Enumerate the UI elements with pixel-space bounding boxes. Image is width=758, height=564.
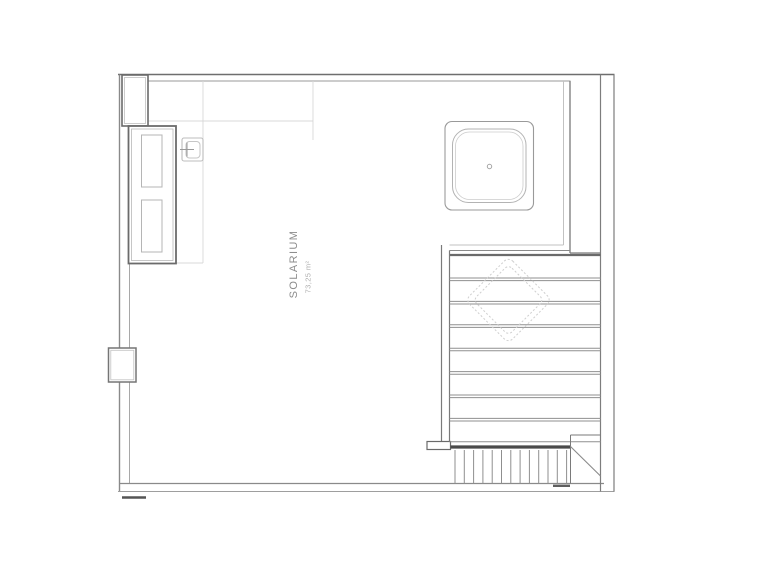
stair-side-wall [427, 245, 451, 450]
grate-hatch [455, 450, 567, 484]
hot-tub-inner-rim [453, 129, 527, 203]
room-name: SOLARIUM [288, 230, 300, 299]
hot-tub [445, 122, 534, 211]
floor-plan-drawing [0, 0, 758, 564]
stair-wall-notch [427, 442, 451, 450]
room-area: 73,25 m² [304, 261, 313, 294]
hot-tub-outer-shell [445, 122, 534, 211]
stair-steps [450, 278, 601, 442]
skylight-diamond [465, 257, 551, 343]
pillar-outline [122, 75, 148, 126]
pillar [122, 75, 148, 126]
planter-cabinet [129, 126, 177, 264]
skylight-outer-icon [465, 257, 551, 343]
floor-plan-canvas: SOLARIUM 73,25 m² [0, 0, 758, 564]
cabinet-outline [129, 126, 177, 264]
staircase [427, 245, 601, 484]
hot-tub-platform [450, 81, 601, 255]
break-diagonal [571, 447, 601, 477]
hot-tub-basin [456, 132, 524, 200]
wall-niche-outline [109, 348, 137, 382]
wall-fixture [180, 138, 203, 161]
wall-niche [109, 348, 137, 382]
drain-icon [487, 164, 491, 168]
